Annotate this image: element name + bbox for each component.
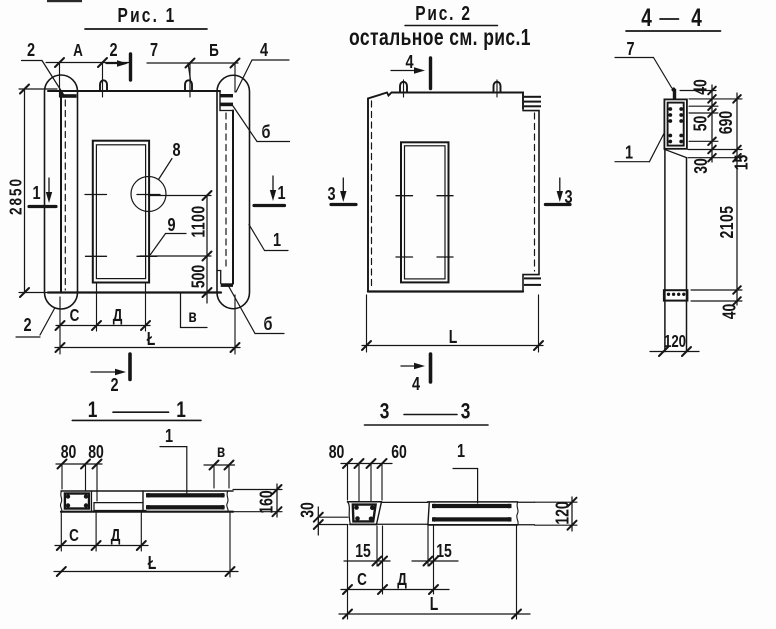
svg-text:500: 500 — [189, 265, 209, 288]
svg-text:С: С — [70, 306, 80, 325]
svg-text:1: 1 — [32, 182, 40, 203]
svg-text:30: 30 — [691, 158, 711, 174]
svg-text:9: 9 — [167, 214, 175, 235]
svg-text:80: 80 — [88, 442, 104, 462]
svg-text:60: 60 — [391, 442, 407, 462]
svg-text:3: 3 — [327, 183, 335, 204]
svg-text:1: 1 — [176, 398, 186, 423]
svg-text:Д: Д — [397, 570, 407, 589]
svg-text:1: 1 — [165, 425, 173, 446]
svg-text:4: 4 — [405, 51, 414, 72]
svg-text:L: L — [430, 594, 439, 614]
svg-text:2: 2 — [23, 314, 31, 335]
svg-text:Рис. 2: Рис. 2 — [415, 2, 472, 24]
svg-text:120: 120 — [664, 332, 686, 351]
svg-text:в: в — [217, 442, 225, 461]
svg-text:Д: Д — [113, 306, 123, 325]
svg-text:8: 8 — [172, 139, 180, 160]
svg-text:Ł: Ł — [147, 329, 156, 349]
svg-text:30: 30 — [298, 502, 318, 518]
svg-text:остальное см. рис.1: остальное см. рис.1 — [349, 26, 531, 51]
svg-text:1: 1 — [457, 440, 465, 461]
svg-text:690: 690 — [716, 111, 736, 134]
svg-text:80: 80 — [329, 442, 345, 462]
svg-text:7: 7 — [150, 39, 158, 60]
svg-text:б: б — [264, 313, 273, 334]
svg-text:15: 15 — [355, 541, 371, 561]
svg-text:3: 3 — [380, 399, 390, 424]
svg-text:4: 4 — [260, 39, 269, 60]
svg-text:2: 2 — [110, 374, 118, 395]
svg-text:1: 1 — [88, 398, 98, 423]
svg-text:Рис. 1: Рис. 1 — [118, 4, 177, 26]
svg-text:120: 120 — [553, 501, 573, 524]
svg-text:2105: 2105 — [717, 205, 737, 238]
svg-text:С: С — [357, 570, 367, 589]
svg-text:1: 1 — [277, 182, 285, 203]
svg-text:4: 4 — [641, 4, 652, 32]
svg-text:15: 15 — [436, 541, 452, 561]
svg-text:1: 1 — [625, 142, 633, 163]
svg-text:3: 3 — [461, 399, 471, 424]
svg-text:2: 2 — [27, 39, 35, 60]
svg-text:2850: 2850 — [7, 177, 26, 215]
svg-text:в: в — [188, 307, 196, 326]
svg-text:1100: 1100 — [189, 205, 209, 237]
svg-text:С: С — [69, 526, 79, 545]
svg-text:А: А — [73, 41, 83, 60]
svg-text:40: 40 — [691, 79, 711, 95]
svg-text:1: 1 — [273, 229, 281, 250]
svg-text:15: 15 — [732, 155, 752, 171]
svg-text:Б: Б — [209, 41, 219, 60]
svg-text:б: б — [262, 121, 271, 142]
svg-text:4: 4 — [691, 4, 702, 32]
svg-text:50: 50 — [691, 116, 711, 132]
svg-text:Д: Д — [111, 526, 121, 545]
svg-text:7: 7 — [626, 38, 634, 59]
svg-text:80: 80 — [61, 442, 77, 462]
svg-text:4: 4 — [412, 373, 421, 394]
svg-text:L: L — [449, 327, 458, 347]
svg-text:2: 2 — [109, 39, 117, 60]
svg-text:Ł: Ł — [148, 553, 157, 573]
svg-text:40: 40 — [720, 304, 740, 320]
svg-text:160: 160 — [257, 490, 277, 513]
